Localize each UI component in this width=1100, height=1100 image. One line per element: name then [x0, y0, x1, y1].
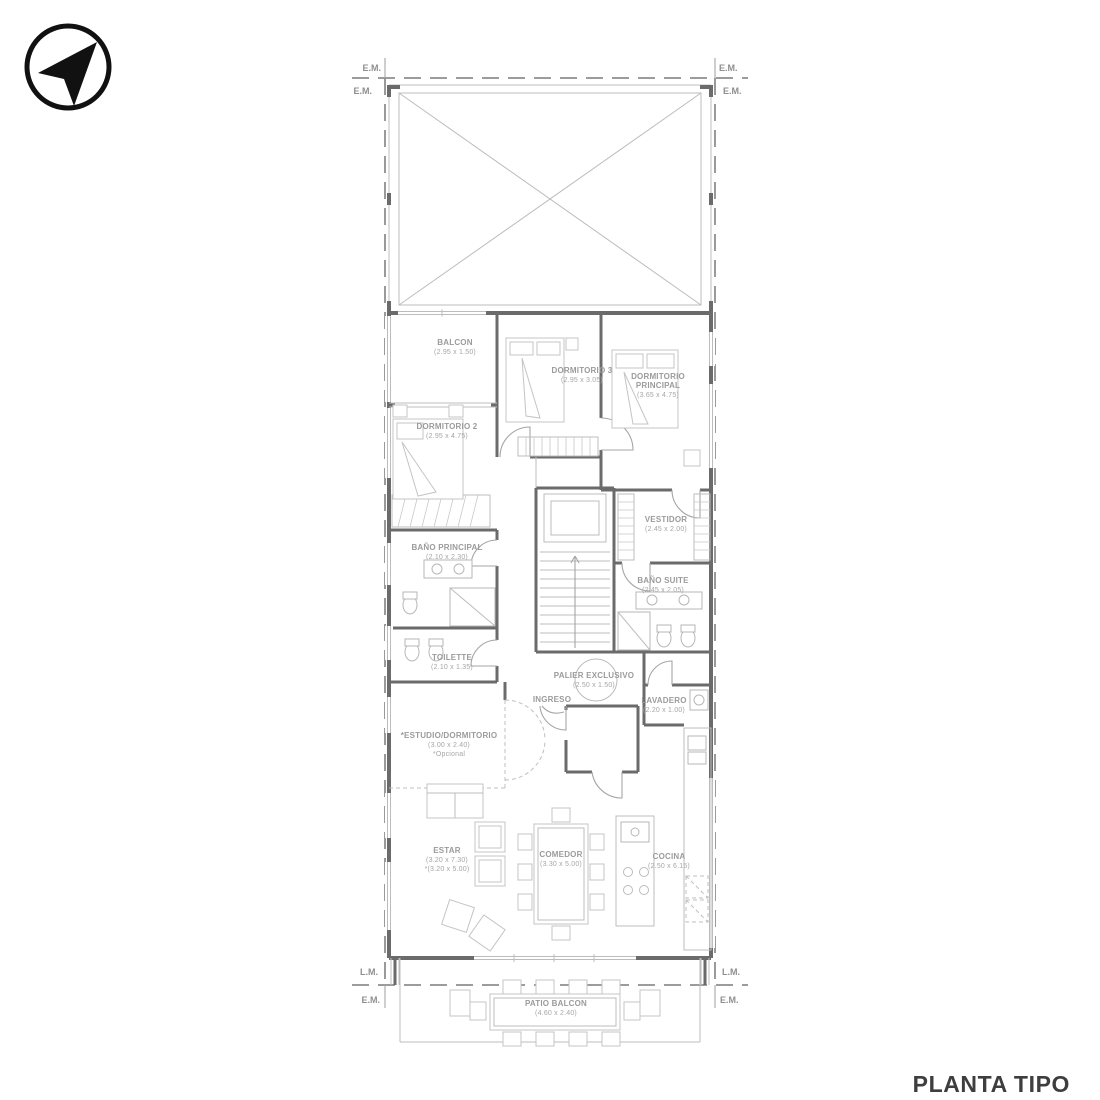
- room-label-palier: PALIER EXCLUSIVO: [554, 671, 634, 680]
- room-label-patio-balcon: PATIO BALCON: [525, 999, 587, 1008]
- room-dims-dormitorio-principal: (3.65 x 4.75): [637, 392, 679, 399]
- em-marker-bottom-left: E.M.: [361, 995, 380, 1005]
- room-label-vestidor: VESTIDOR: [645, 515, 688, 524]
- stair-core: [540, 494, 610, 648]
- room-label-estar: ESTAR: [433, 846, 461, 855]
- room-dims-estudio: (3.00 x 2.40): [428, 742, 470, 749]
- floor-plan-canvas: BALCON (2.95 x 1.50) DORMITORIO 3 (2.95 …: [0, 0, 1100, 1100]
- lm-marker-left: L.M.: [360, 967, 378, 977]
- room-label-cocina: COCINA: [653, 852, 686, 861]
- compass-icon: [27, 26, 109, 108]
- room-dims-bano-suite: (2.45 x 2.05): [642, 587, 684, 594]
- room-dims-cocina: (2.50 x 6.15): [648, 863, 690, 870]
- room-dims-patio-balcon: (4.60 x 2.40): [535, 1010, 577, 1017]
- room-label-ingreso: INGRESO: [533, 695, 571, 704]
- room-dims2-estar: *(3.20 x 5.00): [425, 866, 470, 873]
- room-label-lavadero: LAVADERO: [641, 696, 686, 705]
- lm-marker-right: L.M.: [722, 967, 740, 977]
- room-label-dormitorio3: DORMITORIO 3: [552, 366, 613, 375]
- em-marker-bottom-right: E.M.: [720, 995, 739, 1005]
- room-label-dormitorio-principal-2: PRINCIPAL: [636, 381, 680, 390]
- room-label-dormitorio2: DORMITORIO 2: [417, 422, 478, 431]
- room-dims-lavadero: (2.20 x 1.00): [643, 707, 685, 714]
- bed-dormitorio-2: [393, 405, 463, 499]
- em-marker-top-right: E.M.: [719, 63, 738, 73]
- room-dims-comedor: (3.30 x 5.00): [540, 861, 582, 868]
- roof-void: [389, 85, 711, 313]
- page-title: PLANTA TIPO: [913, 1071, 1070, 1097]
- bedroom-furniture: [393, 338, 700, 499]
- room-dims-bano-principal: (2.10 x 2.30): [426, 554, 468, 561]
- em-marker-upper-left-outer: E.M.: [353, 86, 372, 96]
- room-label-dormitorio-principal: DORMITORIO: [631, 372, 685, 381]
- room-label-balcon: BALCON: [437, 338, 472, 347]
- kitchen: [616, 728, 711, 950]
- room-dims-dormitorio3: (2.95 x 3.05): [561, 377, 603, 384]
- room-label-bano-suite: BAÑO SUITE: [637, 576, 689, 585]
- room-label-comedor: COMEDOR: [539, 850, 582, 859]
- em-marker-top-left: E.M.: [362, 63, 381, 73]
- bed-dormitorio-principal: [612, 350, 700, 466]
- room-label-bano-principal: BAÑO PRINCIPAL: [411, 543, 482, 552]
- room-dims-palier: (2.50 x 1.50): [573, 682, 615, 689]
- room-label-toilette: TOILETTE: [432, 653, 473, 662]
- room-dims-estar: (3.20 x 7.30): [426, 857, 468, 864]
- room-dims-toilette: (2.10 x 1.35): [431, 664, 473, 671]
- dining-furniture: [518, 808, 604, 940]
- room-dims-balcon: (2.95 x 1.50): [434, 349, 476, 356]
- room-dims-vestidor: (2.45 x 2.00): [645, 526, 687, 533]
- room-label-estudio: *ESTUDIO/DORMITORIO: [401, 731, 498, 740]
- room-note-estudio: *Opcional: [433, 751, 465, 758]
- room-dims-dormitorio2: (2.95 x 4.75): [426, 433, 468, 440]
- em-marker-upper-right-outer: E.M.: [723, 86, 742, 96]
